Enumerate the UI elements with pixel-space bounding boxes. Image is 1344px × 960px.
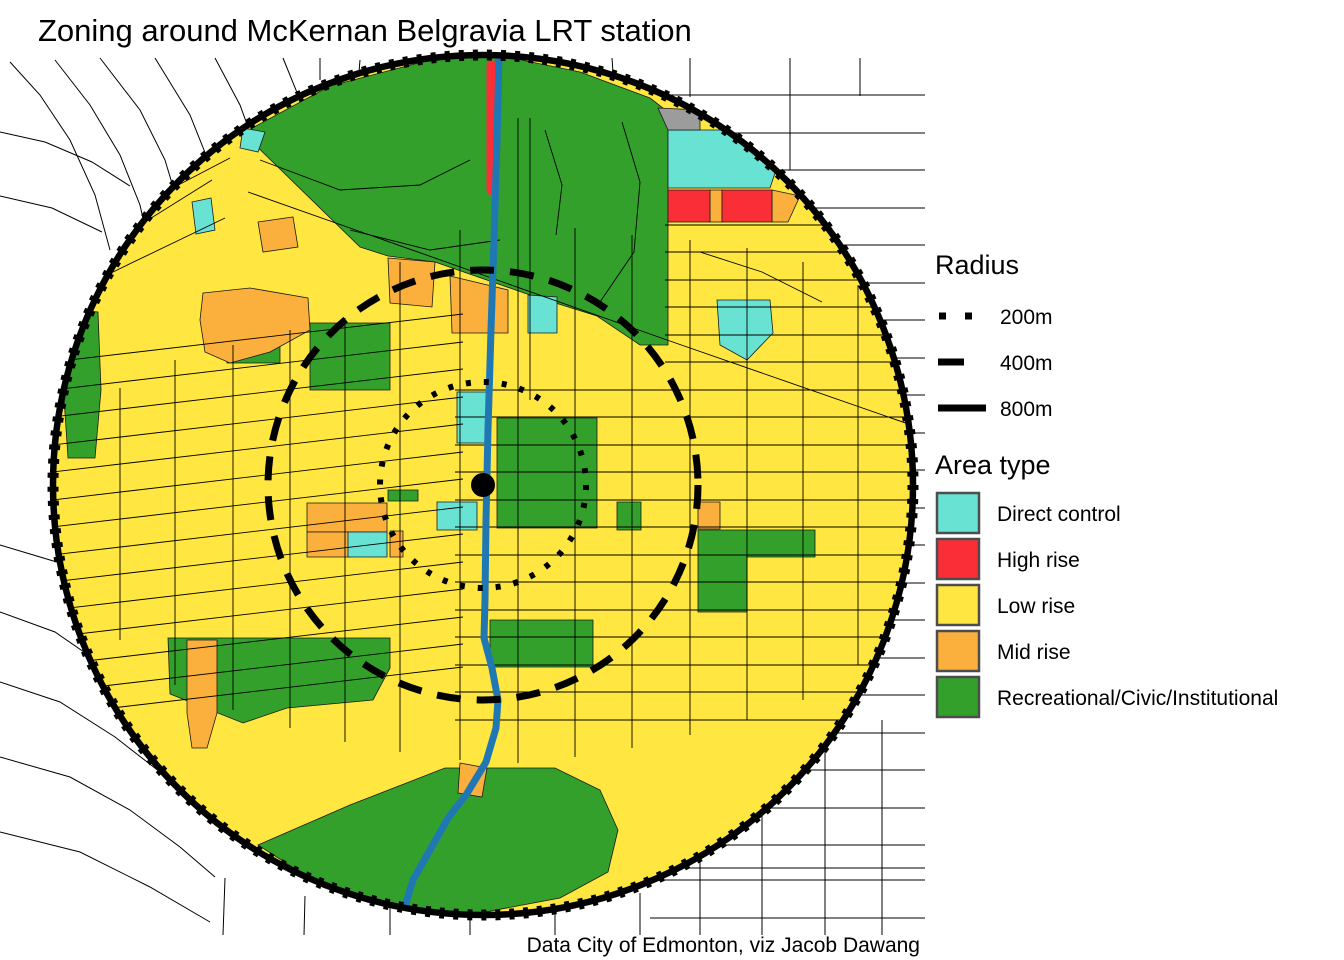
label-mid-rise: Mid rise <box>997 641 1071 664</box>
legend-radius: Radius 200m 400m 800m <box>935 250 1053 421</box>
zone-mid-rise <box>710 190 722 222</box>
caption: Data City of Edmonton, viz Jacob Dawang <box>527 934 920 957</box>
page-title: Zoning around McKernan Belgravia LRT sta… <box>38 13 692 48</box>
street-line <box>223 878 225 935</box>
legend-area-type: Area type Direct control High rise Low r… <box>935 450 1278 717</box>
label-low-rise: Low rise <box>997 595 1075 618</box>
label-recreational: Recreational/Civic/Institutional <box>997 687 1278 710</box>
zone-recreational <box>490 620 593 667</box>
street-line <box>10 62 110 250</box>
zone-high-rise <box>668 190 710 222</box>
swatch-recreational <box>937 677 979 717</box>
street-line <box>304 896 305 935</box>
lrt-station-dot <box>471 473 495 497</box>
legend-radius-title: Radius <box>935 250 1019 280</box>
label-direct-control: Direct control <box>997 503 1121 526</box>
zone-recreational <box>497 418 597 528</box>
zone-direct-control <box>528 295 557 333</box>
swatch-direct-control <box>937 493 979 533</box>
swatch-low-rise <box>937 585 979 625</box>
swatch-mid-rise <box>937 631 979 671</box>
zone-direct-control <box>348 532 387 557</box>
legend-radius-400m-label: 400m <box>1000 352 1053 375</box>
zone-high-rise <box>722 190 772 222</box>
zone-direct-control <box>437 502 477 530</box>
street-line <box>0 196 102 232</box>
swatch-high-rise <box>937 539 979 579</box>
zone-mid-rise <box>698 502 720 529</box>
zoning-figure: Zoning around McKernan Belgravia LRT sta… <box>0 0 1344 960</box>
map-canvas <box>0 55 925 935</box>
label-high-rise: High rise <box>997 549 1080 572</box>
legend-radius-800m-label: 800m <box>1000 398 1053 421</box>
zone-recreational <box>310 323 390 390</box>
zone-recreational <box>388 490 418 501</box>
legend-area-type-title: Area type <box>935 450 1051 480</box>
zone-mid-rise <box>258 217 298 252</box>
zone-recreational <box>617 502 641 530</box>
zone-mid-rise <box>307 532 350 557</box>
legend-radius-200m-label: 200m <box>1000 306 1053 329</box>
zoning-map-svg: Zoning around McKernan Belgravia LRT sta… <box>0 0 1344 960</box>
